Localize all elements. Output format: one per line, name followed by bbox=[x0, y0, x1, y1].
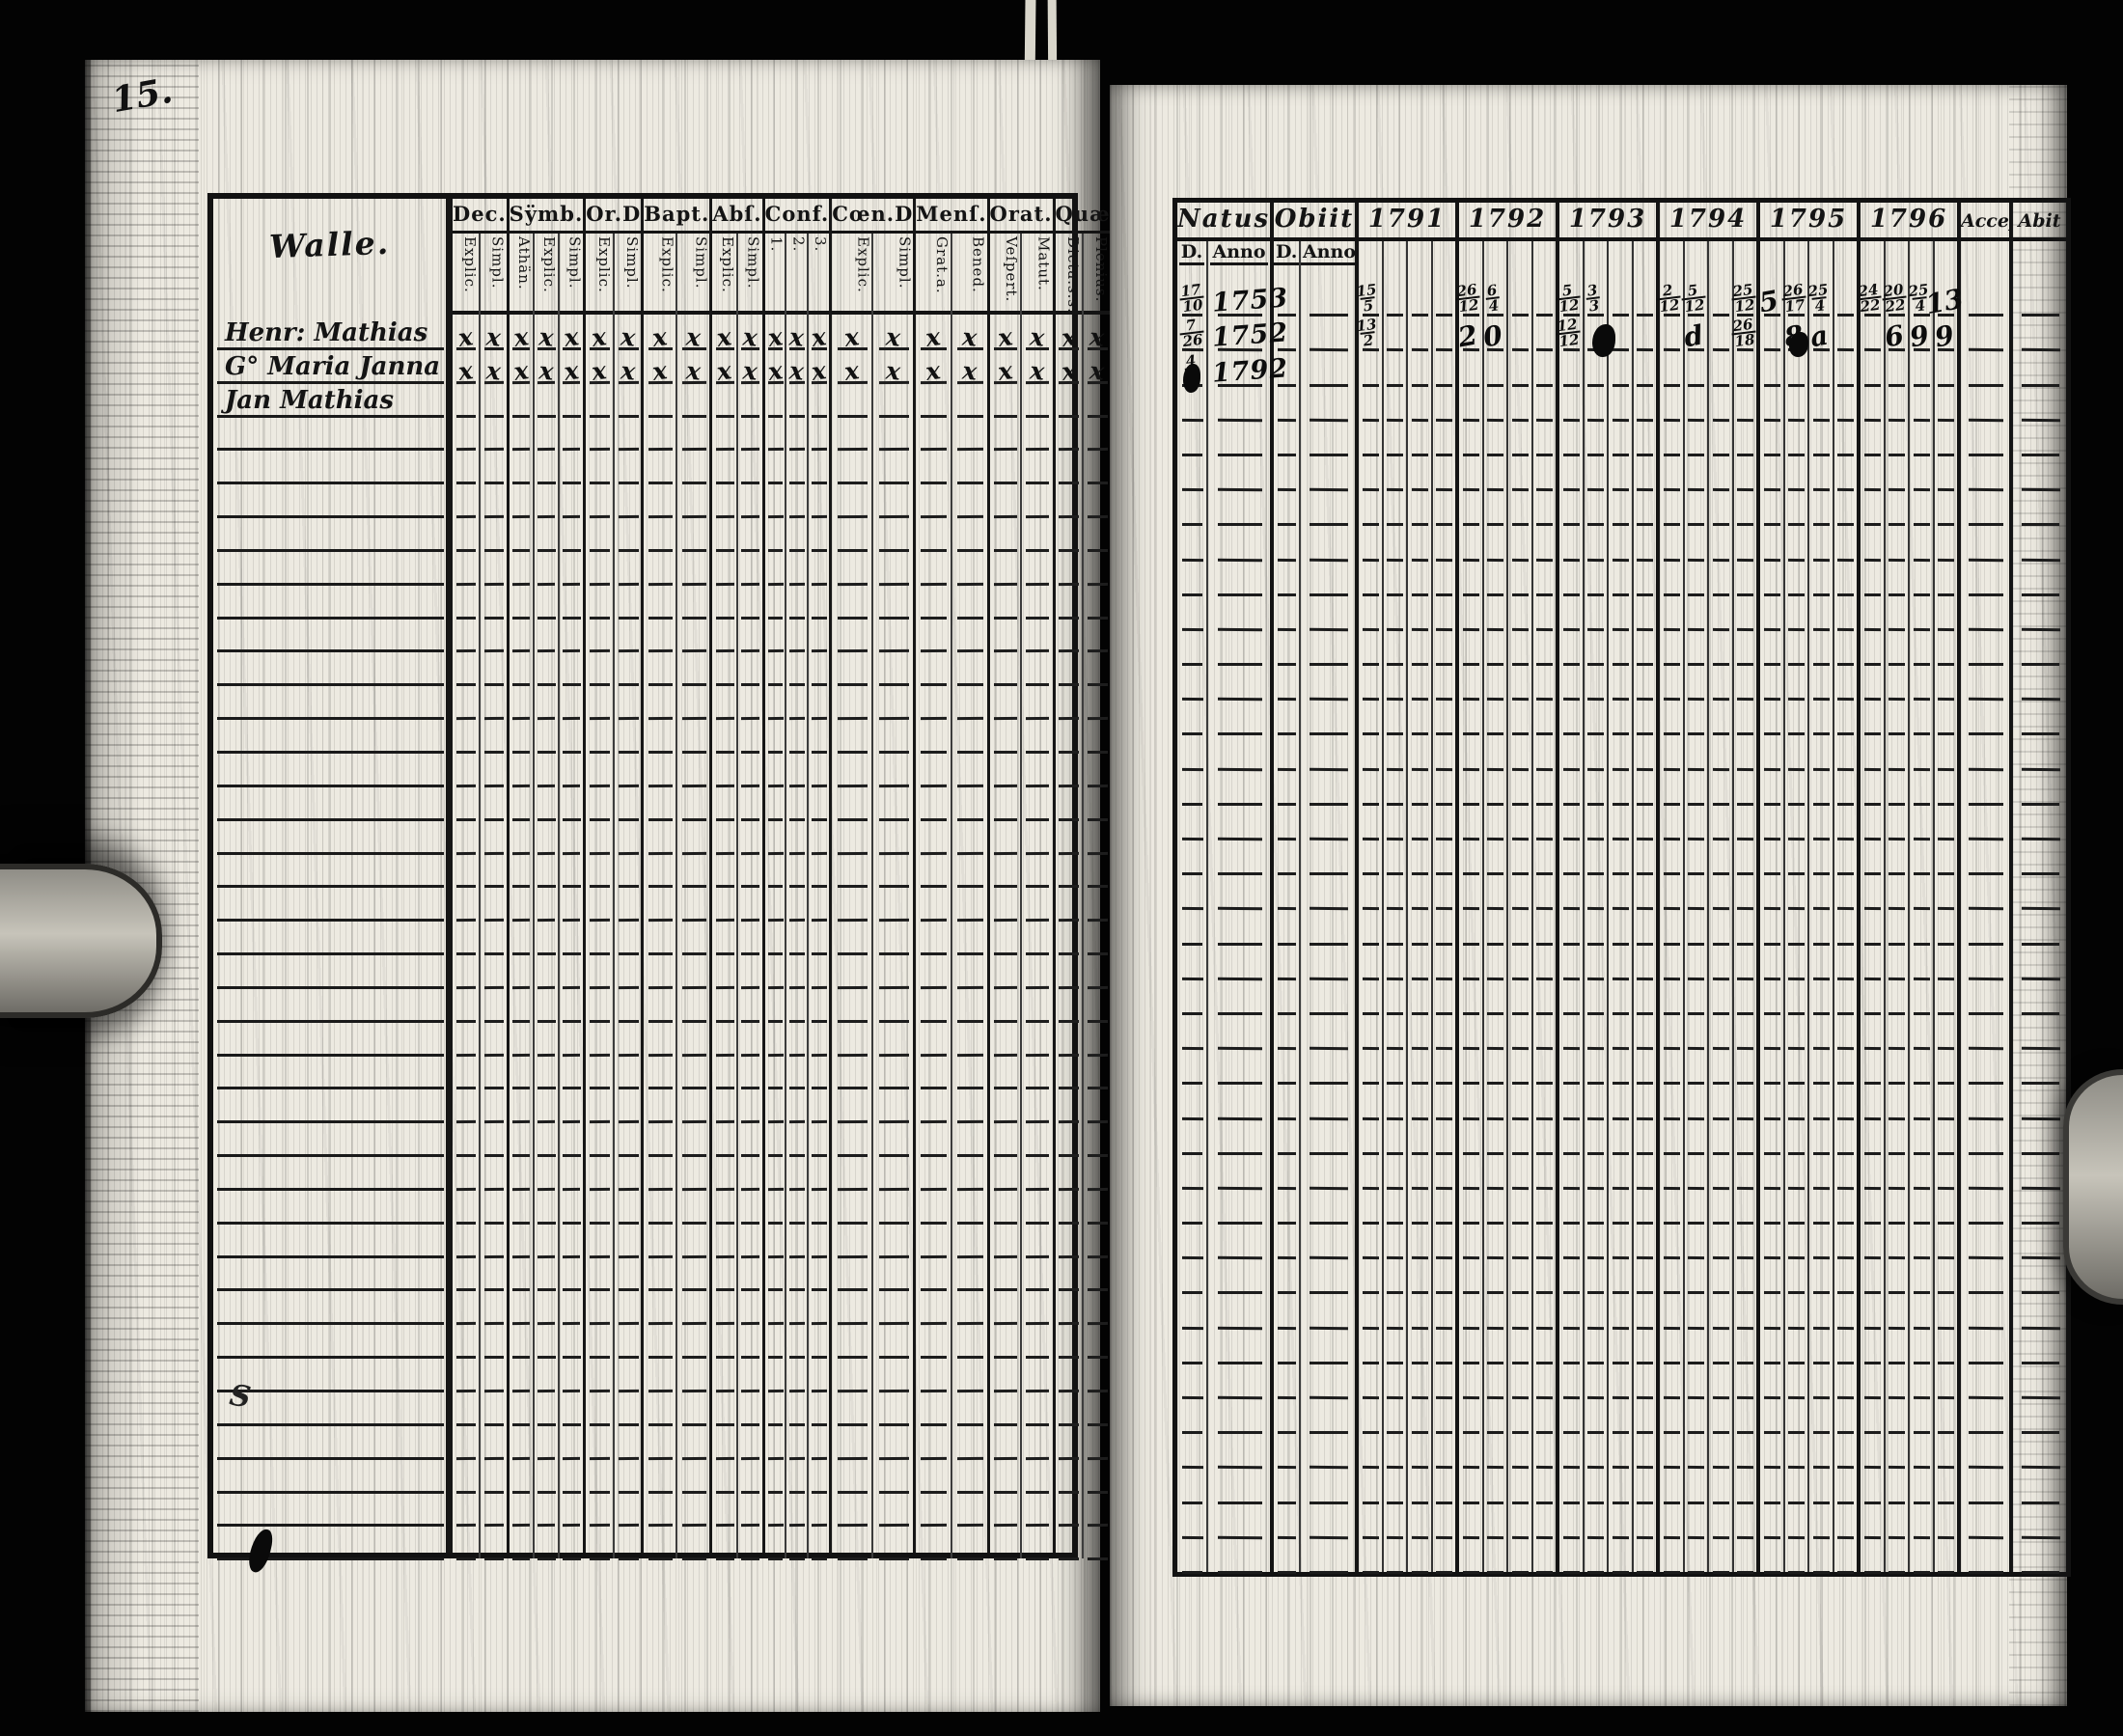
mark-cell bbox=[1022, 1289, 1053, 1323]
mark-cell bbox=[786, 684, 807, 718]
row-cell bbox=[1384, 1153, 1407, 1188]
mark-cell bbox=[510, 886, 533, 920]
row-cell bbox=[1585, 385, 1608, 420]
row-cell bbox=[1685, 1363, 1708, 1397]
x-mark: x bbox=[711, 323, 738, 350]
mark-cell bbox=[560, 1525, 583, 1558]
row-cell bbox=[2013, 944, 2066, 978]
row-cell bbox=[1660, 1118, 1683, 1153]
row-cell bbox=[1660, 315, 1683, 349]
row-cell bbox=[1709, 315, 1732, 349]
row-cell bbox=[1559, 1467, 1583, 1502]
year-group bbox=[1857, 280, 1957, 1572]
mark-cell bbox=[560, 1121, 583, 1155]
mark-cell bbox=[615, 819, 641, 853]
row-cell bbox=[1785, 1328, 1808, 1363]
row-cell bbox=[1274, 385, 1299, 420]
x-mark: x bbox=[1083, 358, 1111, 384]
name-cell bbox=[213, 1525, 446, 1558]
row-cell bbox=[1634, 1432, 1657, 1467]
mark-cell bbox=[560, 516, 583, 550]
row-cell bbox=[1301, 839, 1355, 873]
year-sub-column bbox=[1382, 241, 1407, 280]
row-cell bbox=[1834, 1257, 1858, 1292]
mark-cell bbox=[586, 1021, 612, 1055]
mark-cell bbox=[1056, 819, 1082, 853]
row-cell bbox=[1809, 455, 1833, 489]
row-cell bbox=[1760, 944, 1783, 978]
mark-cell bbox=[535, 482, 558, 516]
row-cell bbox=[1384, 664, 1407, 699]
row-cell bbox=[1685, 944, 1708, 978]
mark-cell bbox=[916, 550, 951, 584]
mark-cell bbox=[1056, 953, 1082, 987]
row-cell bbox=[1886, 1223, 1909, 1257]
mark-cell bbox=[1084, 382, 1110, 416]
row-cell bbox=[1609, 873, 1632, 908]
mark-cell bbox=[990, 1189, 1021, 1223]
mark-cell bbox=[712, 819, 736, 853]
mark-cell bbox=[1022, 416, 1053, 450]
row-cell bbox=[1834, 1467, 1858, 1502]
mark-cell bbox=[809, 1256, 829, 1290]
row-cell bbox=[1886, 1013, 1909, 1048]
row-cell bbox=[1886, 1432, 1909, 1467]
row-cell bbox=[1785, 1432, 1808, 1467]
row-cell bbox=[1533, 1118, 1557, 1153]
row-cell bbox=[1559, 908, 1583, 943]
mark-cell bbox=[677, 1391, 709, 1424]
mark-cell bbox=[809, 785, 829, 819]
row-cell bbox=[1760, 560, 1783, 594]
row-cell bbox=[1508, 315, 1531, 349]
year-sub-column bbox=[1683, 241, 1708, 280]
row-cell bbox=[1785, 1292, 1808, 1327]
row-cell bbox=[1208, 1153, 1270, 1188]
mark-cell: x bbox=[873, 315, 913, 348]
row-cell bbox=[1484, 1467, 1507, 1502]
x-mark: x bbox=[786, 324, 808, 350]
mark-cell bbox=[453, 1458, 479, 1492]
row-cell bbox=[1861, 839, 1884, 873]
mark-cell bbox=[765, 920, 786, 953]
row-cell bbox=[1609, 594, 1632, 629]
row-cell bbox=[1685, 1467, 1708, 1502]
mark-cell bbox=[453, 1357, 479, 1391]
mark-cell bbox=[786, 1357, 807, 1391]
row-cell bbox=[1301, 594, 1355, 629]
group-header: Dec. bbox=[453, 199, 507, 234]
row-cell bbox=[1886, 664, 1909, 699]
mark-cell bbox=[952, 1323, 987, 1357]
subheader-year-group bbox=[1857, 241, 1957, 280]
mark-cell bbox=[873, 1256, 913, 1290]
row-cell bbox=[1861, 1502, 1884, 1537]
mark-cell bbox=[586, 650, 612, 684]
row-cell bbox=[1408, 839, 1431, 873]
row-cell bbox=[1433, 489, 1456, 524]
row-cell bbox=[1301, 769, 1355, 804]
row-cell bbox=[1274, 629, 1299, 664]
mark-cell bbox=[786, 516, 807, 550]
year-sub-column bbox=[1531, 280, 1557, 1572]
row-cell bbox=[1734, 1467, 1757, 1502]
mark-cell: x bbox=[765, 348, 786, 382]
mark-cell bbox=[481, 1424, 507, 1458]
row-cell bbox=[1359, 524, 1382, 559]
row-cell bbox=[1459, 804, 1482, 839]
mark-cell bbox=[586, 1256, 612, 1290]
row-cell bbox=[1685, 1188, 1708, 1223]
mark-cell bbox=[1084, 618, 1110, 651]
row-cell bbox=[1533, 1432, 1557, 1467]
mark-cell bbox=[677, 853, 709, 887]
catechism-register-table: Walle.Henr: MathiasG° Maria JannaJan Mat… bbox=[207, 193, 1078, 1558]
row-cell bbox=[1384, 978, 1407, 1013]
row-cell bbox=[2013, 1083, 2066, 1117]
mark-cell bbox=[615, 752, 641, 785]
row-cell bbox=[1660, 769, 1683, 804]
mark-cell bbox=[1056, 516, 1082, 550]
row-cell bbox=[1585, 1083, 1608, 1117]
row-cell bbox=[1760, 733, 1783, 768]
mark-cell bbox=[832, 752, 871, 785]
mark-cell bbox=[453, 584, 479, 618]
row-cell bbox=[1208, 1223, 1270, 1257]
mark-cell bbox=[453, 1492, 479, 1526]
row-cell bbox=[1809, 978, 1833, 1013]
mark-cell bbox=[952, 1021, 987, 1055]
mark-cell bbox=[535, 449, 558, 482]
row-cell bbox=[1301, 1013, 1355, 1048]
table-title: Walle. bbox=[268, 224, 390, 265]
row-cell bbox=[1861, 524, 1884, 559]
mark-cell bbox=[1022, 618, 1053, 651]
mark-cell bbox=[586, 1458, 612, 1492]
row-cell bbox=[1834, 908, 1858, 943]
mark-cell bbox=[615, 1525, 641, 1558]
row-cell bbox=[1935, 594, 1958, 629]
mark-cell bbox=[809, 752, 829, 785]
row-cell bbox=[1459, 349, 1482, 384]
row-cell bbox=[1384, 594, 1407, 629]
row-cell bbox=[1208, 594, 1270, 629]
row-cell bbox=[1508, 839, 1531, 873]
mark-cell bbox=[712, 550, 736, 584]
row-cell bbox=[1585, 1223, 1608, 1257]
row-cell bbox=[1760, 455, 1783, 489]
mark-cell bbox=[535, 785, 558, 819]
row-cell bbox=[1709, 1292, 1732, 1327]
mark-cell bbox=[873, 1155, 913, 1189]
mark-cell bbox=[809, 1391, 829, 1424]
name-cell bbox=[213, 550, 446, 584]
mark-cell bbox=[453, 1189, 479, 1223]
name-cell bbox=[213, 684, 446, 718]
row-cell bbox=[1634, 489, 1657, 524]
mark-cell bbox=[586, 1323, 612, 1357]
row-cell bbox=[1177, 769, 1206, 804]
row-cell bbox=[1177, 1502, 1206, 1537]
mark-cell bbox=[510, 1289, 533, 1323]
row-cell bbox=[1685, 560, 1708, 594]
group-header: Or.D bbox=[586, 199, 641, 234]
mark-cell bbox=[786, 1055, 807, 1088]
mark-cell bbox=[786, 482, 807, 516]
row-cell bbox=[1634, 769, 1657, 804]
row-cell bbox=[1408, 1257, 1431, 1292]
row-cell bbox=[1585, 804, 1608, 839]
row-cell bbox=[1734, 804, 1757, 839]
mark-cell bbox=[1084, 1155, 1110, 1189]
row-cell bbox=[1359, 1153, 1382, 1188]
row-cell bbox=[1533, 1363, 1557, 1397]
header-acces: Acceſ bbox=[1957, 203, 2009, 237]
mark-cell bbox=[738, 1492, 762, 1526]
row-cell bbox=[1609, 1292, 1632, 1327]
mark-cell bbox=[615, 449, 641, 482]
mark-cell bbox=[786, 1424, 807, 1458]
mark-cell bbox=[453, 382, 479, 416]
row-cell bbox=[2013, 560, 2066, 594]
mark-cell bbox=[615, 516, 641, 550]
sub-column: Grat.a.xx bbox=[916, 234, 951, 1558]
row-cell bbox=[1760, 1432, 1783, 1467]
x-mark: x bbox=[786, 358, 808, 384]
mark-cell bbox=[560, 785, 583, 819]
row-cell bbox=[1861, 1328, 1884, 1363]
row-cell bbox=[1785, 629, 1808, 664]
mark-cell bbox=[453, 1055, 479, 1088]
row-cell bbox=[1433, 1328, 1456, 1363]
row-cell bbox=[1785, 769, 1808, 804]
mark-cell bbox=[916, 1289, 951, 1323]
mark-cell bbox=[1022, 584, 1053, 618]
name-cell bbox=[213, 1424, 446, 1458]
mark-cell bbox=[535, 1021, 558, 1055]
mark-cell bbox=[832, 1189, 871, 1223]
row-cell bbox=[1634, 385, 1657, 420]
row-cell bbox=[1408, 944, 1431, 978]
x-mark: x bbox=[808, 324, 831, 351]
mark-cell bbox=[677, 1223, 709, 1256]
row-cell bbox=[1484, 944, 1507, 978]
row-cell bbox=[1935, 560, 1958, 594]
mark-cell bbox=[586, 1357, 612, 1391]
row-cell bbox=[1609, 524, 1632, 559]
row-cell bbox=[1809, 1537, 1833, 1572]
row-cell bbox=[1809, 1048, 1833, 1083]
row-cell bbox=[1660, 455, 1683, 489]
row-cell bbox=[1834, 629, 1858, 664]
mark-cell bbox=[738, 1055, 762, 1088]
row-cell bbox=[1834, 1537, 1858, 1572]
row-cell bbox=[1760, 1502, 1783, 1537]
mark-cell bbox=[586, 785, 612, 819]
mark-cell bbox=[832, 785, 871, 819]
row-cell bbox=[1274, 1048, 1299, 1083]
sub-column: Simpl.xx bbox=[871, 234, 913, 1558]
row-cell bbox=[1760, 489, 1783, 524]
sub-column: Explic.xx bbox=[644, 234, 675, 1558]
mark-cell bbox=[712, 1525, 736, 1558]
mark-cell bbox=[1022, 987, 1053, 1021]
mark-cell bbox=[677, 584, 709, 618]
mark-cell bbox=[916, 1525, 951, 1558]
row-cell bbox=[2013, 385, 2066, 420]
row-cell bbox=[1301, 699, 1355, 733]
row-cell bbox=[1709, 1328, 1732, 1363]
row-cell bbox=[1433, 1292, 1456, 1327]
mark-cell bbox=[510, 1492, 533, 1526]
mark-cell bbox=[535, 1055, 558, 1088]
x-mark: x bbox=[643, 323, 677, 351]
row-cell bbox=[1208, 1188, 1270, 1223]
mark-cell bbox=[952, 1256, 987, 1290]
mark-cell bbox=[1022, 684, 1053, 718]
row-cell bbox=[1359, 349, 1382, 384]
mark-cell bbox=[786, 1155, 807, 1189]
x-mark: x bbox=[558, 357, 584, 384]
row-cell bbox=[1809, 1292, 1833, 1327]
mark-cell bbox=[916, 618, 951, 651]
mark-cell bbox=[952, 1458, 987, 1492]
row-cell bbox=[1709, 420, 1732, 455]
mark-cell: x bbox=[916, 315, 951, 348]
mark-cell bbox=[916, 1189, 951, 1223]
row-cell bbox=[1809, 349, 1833, 384]
mark-cell bbox=[738, 650, 762, 684]
row-cell bbox=[1433, 1013, 1456, 1048]
mark-cell bbox=[916, 416, 951, 450]
mark-cell bbox=[1084, 1525, 1110, 1558]
row-cell bbox=[1301, 1467, 1355, 1502]
row-cell bbox=[1685, 385, 1708, 420]
mark-cell bbox=[1056, 1323, 1082, 1357]
row-cell bbox=[1785, 873, 1808, 908]
mark-cell bbox=[615, 920, 641, 953]
year-sub-column bbox=[1583, 241, 1608, 280]
mark-cell bbox=[586, 1424, 612, 1458]
mark-cell bbox=[644, 1458, 675, 1492]
mark-cell bbox=[990, 1458, 1021, 1492]
mark-cell bbox=[990, 1357, 1021, 1391]
row-cell bbox=[1274, 280, 1299, 315]
row-cell bbox=[1508, 524, 1531, 559]
row-cell bbox=[1734, 1013, 1757, 1048]
mark-cell bbox=[677, 516, 709, 550]
row-cell bbox=[1274, 1223, 1299, 1257]
row-cell bbox=[1508, 1292, 1531, 1327]
mark-cell bbox=[510, 1055, 533, 1088]
mark-cell: x bbox=[873, 348, 913, 382]
mark-cell bbox=[535, 1458, 558, 1492]
row-cell bbox=[1886, 839, 1909, 873]
row-cell bbox=[1533, 908, 1557, 943]
row-cell bbox=[1533, 1467, 1557, 1502]
row-cell bbox=[1734, 1223, 1757, 1257]
row-cell bbox=[2013, 1432, 2066, 1467]
mark-cell bbox=[535, 516, 558, 550]
row-cell bbox=[1559, 420, 1583, 455]
mark-cell bbox=[916, 1323, 951, 1357]
row-cell bbox=[1559, 944, 1583, 978]
mark-cell bbox=[615, 1121, 641, 1155]
mark-cell bbox=[990, 618, 1021, 651]
mark-cell bbox=[453, 618, 479, 651]
row-cell bbox=[1274, 1502, 1299, 1537]
row-cell bbox=[1935, 839, 1958, 873]
mark-cell bbox=[453, 987, 479, 1021]
mark-cell bbox=[1022, 1424, 1053, 1458]
row-cell bbox=[1760, 664, 1783, 699]
row-cell bbox=[1274, 733, 1299, 768]
subheader-year-group bbox=[1355, 241, 1455, 280]
mark-cell bbox=[952, 718, 987, 752]
mark-cell bbox=[644, 1391, 675, 1424]
row-cell bbox=[1384, 1432, 1407, 1467]
group-header: Orat. bbox=[990, 199, 1053, 234]
row-cell bbox=[1384, 1188, 1407, 1223]
row-cell bbox=[1861, 908, 1884, 943]
mark-cell bbox=[990, 1088, 1021, 1121]
mark-cell bbox=[832, 449, 871, 482]
mark-cell bbox=[586, 449, 612, 482]
row-cell bbox=[1734, 978, 1757, 1013]
row-cell bbox=[2013, 420, 2066, 455]
mark-cell bbox=[809, 886, 829, 920]
row-cell bbox=[1408, 769, 1431, 804]
mark-cell bbox=[644, 1223, 675, 1256]
row-cell bbox=[1408, 385, 1431, 420]
row-cell bbox=[1834, 944, 1858, 978]
mark-cell bbox=[738, 1323, 762, 1357]
row-cell bbox=[1734, 664, 1757, 699]
row-cell bbox=[1459, 978, 1482, 1013]
row-cell bbox=[1961, 978, 2009, 1013]
row-cell bbox=[1559, 1013, 1583, 1048]
mark-cell bbox=[712, 449, 736, 482]
row-cell bbox=[1208, 873, 1270, 908]
mark-cell bbox=[510, 618, 533, 651]
row-cell bbox=[2013, 769, 2066, 804]
year-sub-column bbox=[1583, 280, 1608, 1572]
mark-cell bbox=[1022, 1155, 1053, 1189]
row-cell bbox=[1408, 1013, 1431, 1048]
mark-cell bbox=[1056, 853, 1082, 887]
row-cell bbox=[1961, 1153, 2009, 1188]
row-cell bbox=[1861, 1223, 1884, 1257]
row-cell bbox=[1809, 1153, 1833, 1188]
x-mark: x bbox=[951, 357, 988, 384]
row-cell bbox=[1433, 664, 1456, 699]
group-header: Abſ. bbox=[712, 199, 761, 234]
row-cell bbox=[1177, 315, 1206, 349]
row-cell bbox=[1634, 873, 1657, 908]
mark-cell bbox=[560, 584, 583, 618]
row-cell bbox=[1408, 1432, 1431, 1467]
mark-cell bbox=[809, 584, 829, 618]
mark-cell bbox=[990, 1424, 1021, 1458]
row-cell bbox=[1961, 1048, 2009, 1083]
row-cell bbox=[1384, 1257, 1407, 1292]
row-cell bbox=[1660, 349, 1683, 384]
mark-cell bbox=[809, 1021, 829, 1055]
row-cell bbox=[1459, 1467, 1482, 1502]
mark-cell bbox=[952, 382, 987, 416]
row-cell bbox=[1634, 978, 1657, 1013]
row-cell bbox=[1861, 1013, 1884, 1048]
